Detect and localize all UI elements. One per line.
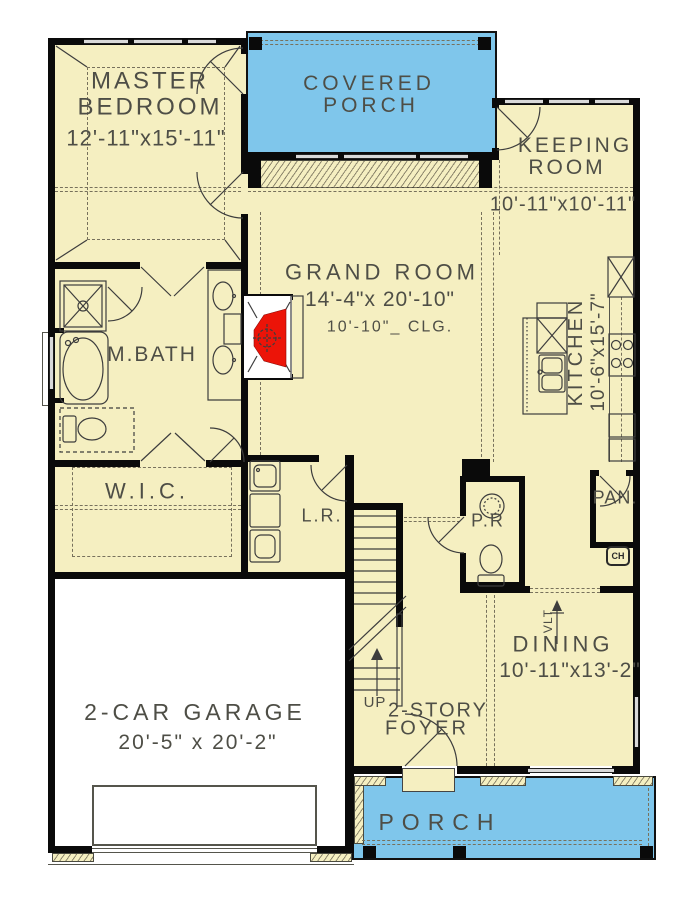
window: [134, 39, 182, 44]
porch-label: PORCH: [378, 810, 501, 834]
keeping-room-label: KEEPING: [518, 135, 632, 157]
wall: [490, 766, 530, 774]
drive-apron-hatch: [52, 853, 94, 862]
window: [420, 154, 468, 159]
ceiling-line: [481, 212, 482, 462]
wall: [600, 586, 640, 593]
wall: [460, 476, 525, 482]
grand-room-label: GRAND ROOM: [285, 260, 479, 283]
garage-dims: 20'-5" x 20'-2": [118, 732, 277, 754]
porch-beam-line: [255, 40, 490, 45]
beam-post: [248, 160, 261, 188]
wall: [241, 462, 248, 579]
window: [634, 697, 639, 747]
window: [549, 99, 589, 104]
stairs-up-label: UP: [364, 695, 387, 711]
wall: [626, 470, 640, 476]
garage-door-line: [92, 852, 317, 853]
wall: [457, 766, 490, 774]
window: [344, 154, 416, 159]
wall: [317, 846, 354, 853]
powder-room-label: P.R: [471, 512, 505, 531]
ceiling-break-line: [55, 505, 241, 510]
keeping-room-label: ROOM: [528, 157, 605, 179]
window: [528, 768, 614, 773]
covered-porch-label: PORCH: [323, 95, 419, 117]
foyer-dining-line: [494, 595, 495, 766]
fireplace-wall: [241, 294, 293, 300]
porch-post: [363, 846, 376, 858]
upper-cabinet-line: [621, 297, 622, 462]
pantry-label: PAN.: [593, 489, 638, 508]
porch-post: [249, 37, 262, 50]
beam-hatch: [248, 160, 492, 188]
wall: [48, 572, 354, 579]
fireplace-wall: [241, 374, 293, 380]
vault-marker-label: VLT: [542, 601, 556, 641]
wall: [241, 214, 248, 464]
beam-post: [479, 160, 492, 188]
master-bedroom-label: MASTER: [91, 68, 209, 93]
window: [49, 337, 54, 389]
wall: [48, 846, 92, 853]
chase-wall: [462, 459, 490, 476]
wall: [352, 766, 402, 774]
grand-room-dims: 14'-4"x 20'-10": [305, 289, 455, 311]
kitchen-label-block: KITCHEN 10'-6"x15'-7": [565, 267, 611, 437]
master-bedroom-dims: 12'-11"x15'-11": [66, 126, 225, 149]
wall: [460, 476, 466, 516]
wall: [241, 94, 248, 174]
ground-line: [48, 864, 354, 865]
garage-door-line: [92, 848, 317, 849]
master-bath-label: M.BATH: [107, 344, 197, 366]
wall: [492, 98, 499, 108]
window: [188, 39, 216, 44]
wic-label: W.I.C.: [105, 479, 189, 502]
wall: [48, 262, 140, 269]
wall: [206, 262, 248, 269]
dining-label: DINING: [513, 632, 614, 655]
wall: [48, 460, 140, 467]
window: [296, 154, 338, 159]
floor-plan: MASTER BEDROOM 12'-11"x15'-11" COVERED P…: [0, 0, 699, 900]
master-bedroom-label: BEDROOM: [77, 94, 222, 119]
ceiling-break-line: [248, 187, 633, 192]
wall: [590, 470, 596, 548]
tub-nook-wall: [48, 328, 64, 333]
ceiling-line: [493, 212, 494, 462]
chase-marker: CH: [606, 546, 630, 566]
wall: [492, 148, 499, 160]
dining-dims: 10'-11"x13'-2": [499, 660, 641, 682]
kitchen-dims: 10'-6"x15'-7": [588, 267, 610, 437]
wall: [519, 476, 525, 588]
ceiling-break-line: [55, 187, 241, 192]
garage-door-outline: [92, 785, 317, 846]
porch-edge-hatch: [480, 776, 526, 786]
foyer-dining-line: [486, 595, 487, 766]
grand-room-ceiling: 10'-10"_ CLG.: [327, 320, 453, 337]
keeping-room-dims: 10'-11"x10'-11": [490, 195, 636, 216]
porch-beam-line: [362, 840, 642, 845]
wall: [612, 766, 640, 774]
kitchen-label: KITCHEN: [565, 267, 588, 437]
porch-edge-hatch: [613, 776, 653, 786]
hall-opening-line: [404, 517, 460, 522]
covered-porch-label: COVERED: [303, 73, 435, 95]
porch-post: [478, 37, 491, 50]
wall: [241, 38, 248, 54]
wall: [48, 38, 55, 853]
window: [84, 39, 128, 44]
porch-post: [453, 846, 466, 858]
tub-nook-wall: [48, 398, 64, 403]
window: [595, 99, 629, 104]
wall: [460, 586, 530, 593]
porch-edge-hatch: [354, 776, 364, 844]
porch-screen-line: [648, 788, 649, 846]
window: [505, 99, 543, 104]
wall: [396, 503, 403, 627]
wall: [241, 455, 319, 462]
laundry-label: L.R.: [301, 507, 342, 526]
porch-edge-hatch: [354, 776, 386, 786]
cased-opening-line: [530, 588, 600, 593]
garage-label: 2-CAR GARAGE: [84, 700, 306, 724]
drive-apron-hatch: [310, 853, 352, 862]
porch-post: [640, 846, 653, 858]
wall: [345, 503, 403, 510]
foyer-label: FOYER: [385, 719, 469, 740]
front-stoop: [402, 768, 455, 792]
ceiling-line: [260, 212, 261, 455]
wall: [345, 455, 354, 853]
